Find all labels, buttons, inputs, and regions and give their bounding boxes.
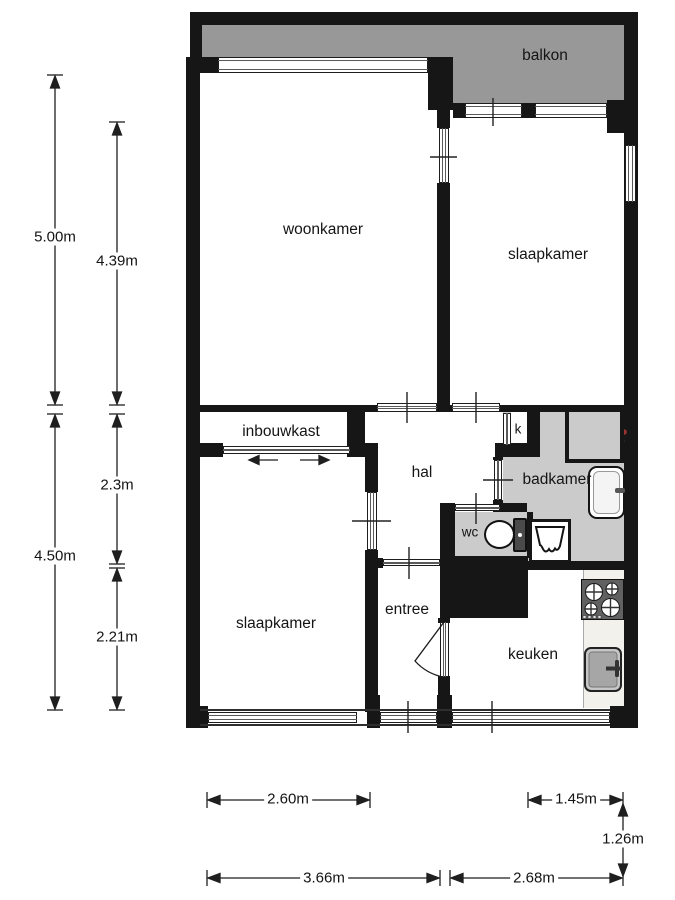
room-label-keuken: keuken — [508, 646, 558, 664]
shower-icon — [529, 519, 571, 563]
wall-segment — [197, 57, 218, 73]
door-bathroom — [494, 460, 502, 500]
dim-label-2-60m: 2.60m — [264, 791, 312, 808]
wall-segment — [610, 706, 638, 728]
dim-label-4-50m: 4.50m — [31, 548, 79, 565]
wall-segment — [365, 550, 378, 712]
dim-label-2-68m: 2.68m — [510, 870, 558, 887]
toilet-tank — [513, 518, 527, 552]
wall-segment — [500, 503, 527, 512]
room-label-entree: entree — [385, 601, 429, 619]
dim-label-1-45m: 1.45m — [552, 791, 600, 808]
room-label-badkamer: badkamer — [523, 471, 592, 489]
wall-segment — [522, 103, 535, 118]
sliding-door-wardrobe — [223, 446, 350, 454]
wall-segment — [453, 103, 465, 118]
dim-label-1-26m: 1.26m — [599, 831, 647, 848]
window — [465, 103, 522, 118]
wall-segment — [440, 503, 455, 558]
wall-segment — [195, 12, 635, 25]
door-bedroom-bottom — [367, 492, 377, 550]
washer-area — [565, 408, 624, 463]
window — [535, 103, 607, 118]
room-label-woonkamer: woonkamer — [283, 221, 363, 239]
room-label-kast: k — [515, 422, 522, 437]
wall-segment — [607, 100, 624, 133]
utility-shaft — [440, 556, 528, 618]
wall-segment — [186, 57, 200, 728]
front-door-panel — [380, 712, 437, 723]
washbasin-tap — [615, 488, 625, 493]
wall-segment — [200, 443, 223, 457]
dim-label-2-3m: 2.3m — [97, 477, 136, 494]
wall-segment — [495, 443, 540, 457]
wall-segment — [437, 183, 450, 412]
kitchen-sink-icon — [584, 647, 624, 692]
stove-4-burner-icon — [581, 579, 624, 620]
room-label-slaapkamer-top: slaapkamer — [508, 246, 588, 264]
room-label-wc: wc — [462, 525, 479, 540]
dim-label-2-21m: 2.21m — [93, 629, 141, 646]
wall-segment — [365, 443, 378, 492]
room-label-hal: hal — [412, 464, 433, 482]
dim-label-3-66m: 3.66m — [300, 870, 348, 887]
window — [218, 57, 428, 73]
window — [208, 712, 357, 723]
wall-line — [200, 724, 610, 726]
wall-segment — [437, 100, 450, 128]
door-living-room — [377, 403, 437, 412]
door-kitchen — [440, 622, 449, 677]
dim-label-5-00m: 5.00m — [31, 229, 79, 246]
wall-segment — [348, 443, 365, 457]
room-label-inbouwkast: inbouwkast — [242, 423, 320, 441]
wall-line — [200, 709, 610, 711]
wall-segment — [624, 12, 638, 728]
room-label-balkon: balkon — [522, 47, 568, 65]
room-label-slaapkamer-bottom: slaapkamer — [236, 615, 316, 633]
window — [625, 145, 636, 202]
toilet-icon — [484, 520, 515, 549]
floor-plan: balkon woonkamer slaapkamer inbouwkast h… — [0, 0, 675, 900]
interior-window — [439, 128, 449, 183]
door-closet-k — [503, 413, 511, 445]
door-wc — [455, 504, 500, 511]
sliding-door-arrows — [249, 456, 329, 465]
door-entree — [383, 559, 440, 566]
door-bedroom-top — [452, 403, 500, 412]
dim-label-4-39m: 4.39m — [93, 253, 141, 270]
window — [452, 712, 610, 723]
wall-segment — [437, 405, 452, 412]
